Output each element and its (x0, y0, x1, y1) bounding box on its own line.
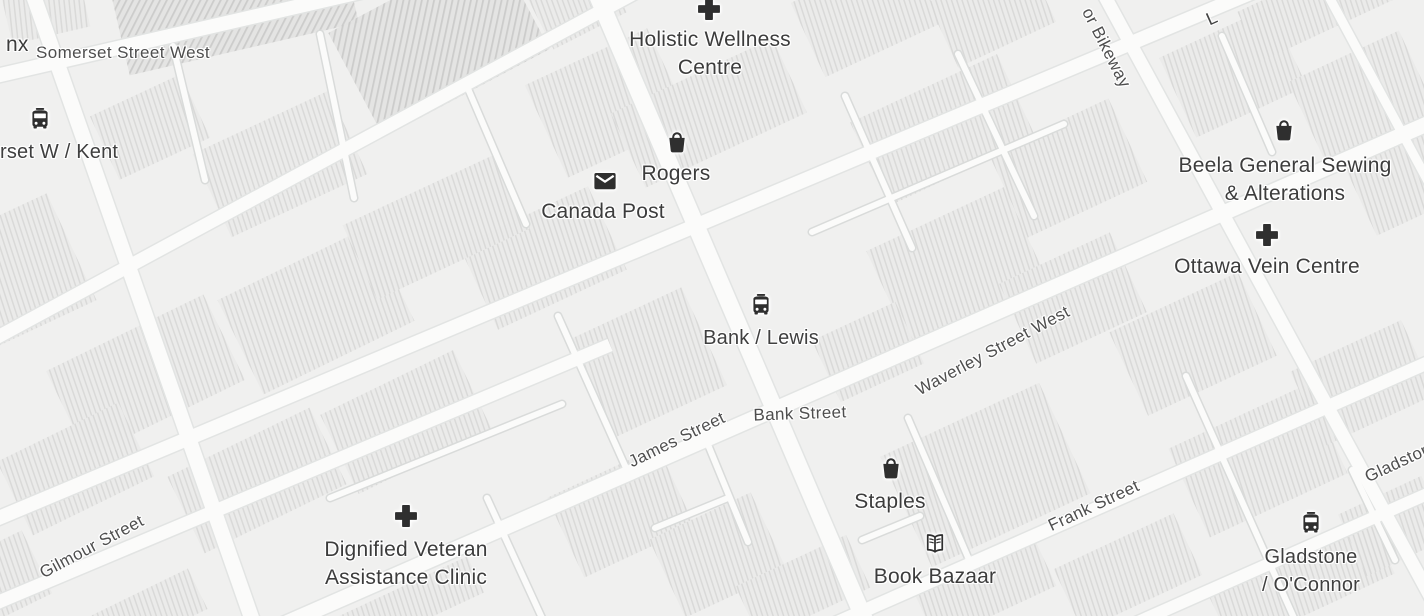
street-label-partial-label-l: L (1203, 7, 1221, 30)
poi-dignified-veteran-assistance-clinic[interactable]: Dignified VeteranAssistance Clinic (324, 536, 487, 592)
bus-icon (1298, 511, 1324, 537)
shopping-bag-icon (664, 130, 690, 156)
map-labels-layer: Somerset Street WestJames StreetBank Str… (0, 0, 1424, 616)
street-label-gladstone-street: Gladstone (1362, 435, 1424, 487)
transit-stop-somerset-w-kent[interactable]: rset W / Kent (0, 138, 118, 166)
map-canvas[interactable]: Somerset Street WestJames StreetBank Str… (0, 0, 1424, 616)
medical-cross-icon (393, 503, 419, 529)
open-book-icon (922, 531, 948, 557)
medical-cross-icon (696, 0, 722, 22)
bus-icon (748, 293, 774, 319)
poi-book-bazaar[interactable]: Book Bazaar (874, 563, 996, 591)
transit-stop-gladstone-oconnor[interactable]: Gladstone/ O'Connor (1262, 543, 1360, 599)
mail-icon (592, 168, 618, 194)
medical-cross-icon (1254, 222, 1280, 248)
shopping-bag-icon (878, 456, 904, 482)
shopping-bag-icon (1271, 118, 1297, 144)
poi-canada-post[interactable]: Canada Post (541, 198, 665, 226)
transit-stop-bank-lewis[interactable]: Bank / Lewis (703, 324, 819, 352)
poi-partial-poi-nx[interactable]: nx (6, 31, 29, 59)
street-label-gilmour-street: Gilmour Street (36, 511, 147, 583)
street-label-james-street: James Street (625, 408, 728, 472)
poi-ottawa-vein-centre[interactable]: Ottawa Vein Centre (1174, 253, 1360, 281)
bus-icon (27, 107, 53, 133)
poi-beela-general-sewing[interactable]: Beela General Sewing& Alterations (1179, 152, 1392, 208)
poi-rogers[interactable]: Rogers (642, 160, 711, 188)
street-label-oconnor-bikeway: or Bikeway (1077, 5, 1134, 92)
street-label-somerset-street-west: Somerset Street West (36, 43, 210, 63)
street-label-frank-street: Frank Street (1045, 476, 1143, 536)
street-label-bank-street: Bank Street (753, 402, 847, 425)
poi-holistic-wellness-centre[interactable]: Holistic WellnessCentre (629, 26, 791, 82)
poi-staples[interactable]: Staples (854, 488, 925, 516)
street-label-waverley-street-west: Waverley Street West (913, 302, 1074, 400)
